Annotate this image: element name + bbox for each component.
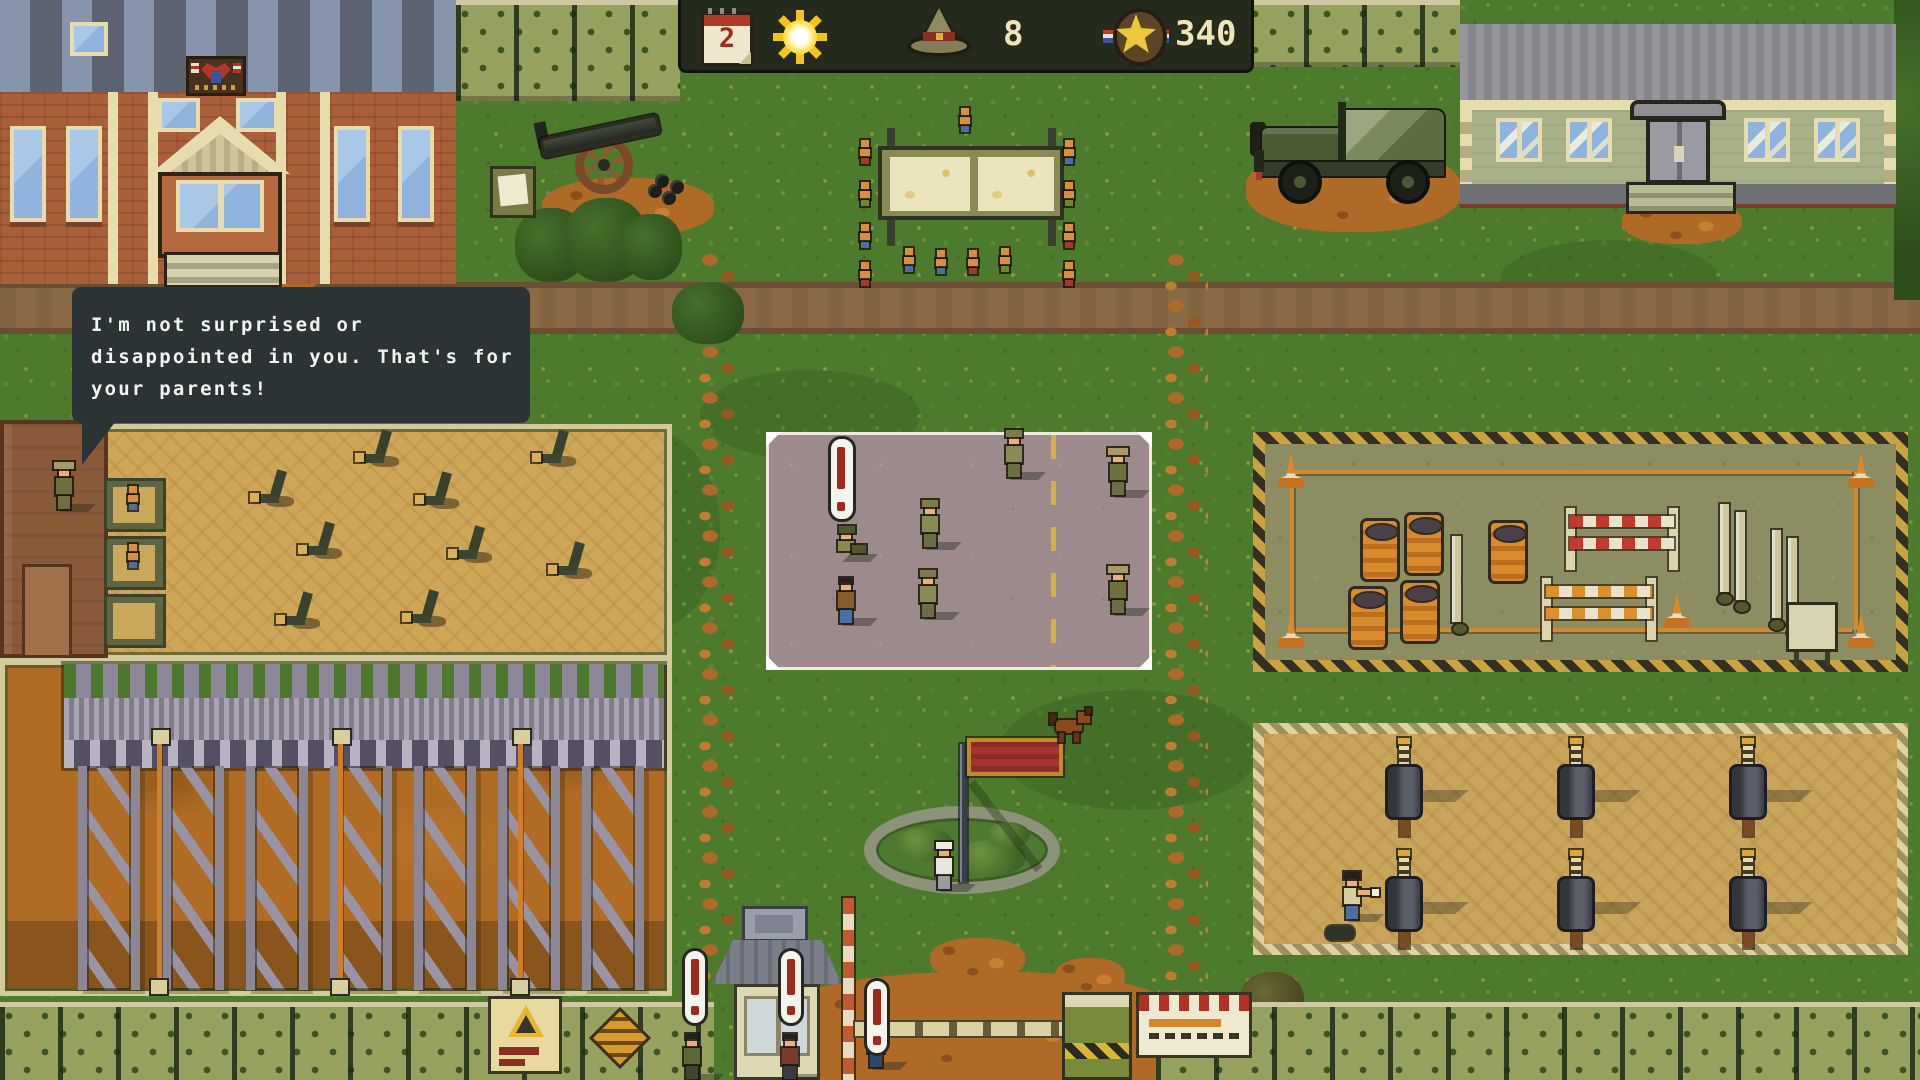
- game-scene: 2 8 340 I'm not surprised or disappointe…: [0, 0, 1920, 1080]
- annex-door-canopy: [1630, 100, 1726, 120]
- hq-window: [398, 126, 434, 222]
- selection-corner: [1137, 432, 1152, 447]
- drill-instructor-unit[interactable]: [1106, 448, 1130, 498]
- hq-window-small: [236, 98, 278, 132]
- drill-instructor-unit[interactable]: [1106, 566, 1130, 616]
- punching-bag[interactable]: [1726, 850, 1770, 948]
- rope-base: [330, 978, 350, 996]
- recruit-unit[interactable]: [858, 140, 872, 164]
- seated-soldier-unit[interactable]: [834, 528, 858, 562]
- recruit-situps[interactable]: [276, 590, 320, 634]
- no-entry-sign: [1786, 602, 1838, 670]
- exclamation-alert[interactable]: [682, 948, 708, 1026]
- annex-steps: [1626, 182, 1736, 214]
- exercise-mat: [104, 594, 166, 648]
- notice-board[interactable]: [878, 146, 1064, 220]
- annex-door: [1646, 118, 1710, 184]
- selection-corner: [1137, 655, 1152, 670]
- trestle-column: [498, 766, 560, 990]
- rope-base: [149, 978, 169, 996]
- flagpole[interactable]: [960, 744, 967, 882]
- hq-steps: [164, 252, 282, 288]
- military-jeep[interactable]: [1250, 92, 1462, 222]
- hq-pilaster: [320, 92, 330, 284]
- recruit-situps[interactable]: [415, 470, 459, 514]
- drill-sergeant-unit[interactable]: [52, 462, 76, 512]
- trestle-column: [582, 766, 644, 990]
- gate-notice-sign: [1136, 992, 1252, 1058]
- dirt-patch: [930, 938, 1025, 980]
- arriving-civilian-unit[interactable]: [778, 1032, 802, 1080]
- recruit-unit[interactable]: [1062, 182, 1076, 206]
- exclamation-alert[interactable]: [828, 436, 856, 522]
- recruit-exercising[interactable]: [126, 486, 140, 510]
- warning-poster: [488, 996, 562, 1074]
- trestle-column: [78, 766, 140, 990]
- annex-window: [1814, 118, 1860, 162]
- recruit-situps[interactable]: [448, 524, 492, 568]
- arriving-civilian-unit[interactable]: [680, 1032, 704, 1080]
- guard-booth: [1062, 992, 1132, 1080]
- rope-base: [510, 978, 530, 996]
- recruit-situps[interactable]: [548, 540, 592, 584]
- trestle-column: [162, 766, 224, 990]
- civilian-recruit-unit[interactable]: [834, 576, 858, 626]
- hq-window: [66, 126, 102, 222]
- annex-window: [1566, 118, 1612, 162]
- recruit-unit[interactable]: [1062, 140, 1076, 164]
- recruit-unit[interactable]: [1062, 224, 1076, 248]
- hq-window: [334, 126, 370, 222]
- hq-window-small: [158, 98, 200, 132]
- gate-barrier-pole: [843, 898, 854, 1080]
- punching-bag[interactable]: [1382, 738, 1426, 836]
- headquarters-building[interactable]: [0, 0, 456, 284]
- soldier-unit[interactable]: [1002, 430, 1026, 480]
- speech-line: your parents!: [91, 373, 530, 405]
- barrel: [1400, 580, 1440, 644]
- cordon-rope: [1854, 472, 1858, 630]
- practice-pole: [1450, 534, 1466, 642]
- cordon-rope: [1292, 470, 1852, 474]
- drill-instructor-count: 8: [1003, 14, 1023, 54]
- selection-corner: [766, 432, 781, 447]
- chain-link-fence: [1246, 0, 1460, 67]
- soldier-unit[interactable]: [918, 500, 942, 550]
- dirt-patch: [1055, 958, 1125, 994]
- barrel: [1488, 520, 1528, 584]
- speech-line: disappointed in you. That's for: [91, 341, 530, 373]
- hq-pilaster: [108, 92, 118, 284]
- climbing-rope[interactable]: [518, 744, 523, 986]
- annex-quoin: [1884, 110, 1896, 184]
- barrel: [1348, 586, 1388, 650]
- hazard-diamond-sign: [588, 1006, 652, 1072]
- barrel: [1404, 512, 1444, 576]
- speech-bubble: I'm not surprised or disappointed in you…: [72, 287, 530, 423]
- recruit-unit[interactable]: [966, 250, 980, 274]
- annex-roof: [1460, 24, 1896, 100]
- punching-bag[interactable]: [1554, 738, 1598, 836]
- recruit-unit[interactable]: [902, 248, 916, 272]
- log-bundle: [1716, 502, 1752, 610]
- campaign-hat-icon: [908, 8, 970, 62]
- recruit-exercising[interactable]: [126, 544, 140, 568]
- merit-points-count: 340: [1175, 14, 1236, 54]
- dirt-trail: [698, 250, 738, 990]
- instructor-platform[interactable]: [0, 420, 108, 658]
- annex-building[interactable]: [1460, 24, 1896, 208]
- recruit-unit[interactable]: [998, 248, 1012, 272]
- recruit-unit[interactable]: [958, 108, 972, 132]
- top-hud-bar: 2 8 340: [678, 0, 1254, 73]
- soldier-unit[interactable]: [916, 570, 940, 620]
- camp-dog[interactable]: [1052, 708, 1092, 746]
- exclamation-alert[interactable]: [778, 948, 804, 1026]
- parade-ground[interactable]: [766, 432, 1152, 670]
- climbing-rope[interactable]: [338, 744, 343, 986]
- duffel-bag: [1326, 926, 1354, 940]
- annex-window: [1496, 118, 1542, 162]
- speech-line: I'm not surprised or: [91, 309, 530, 341]
- dirt-trail: [1164, 250, 1208, 1080]
- punching-bag[interactable]: [1382, 850, 1426, 948]
- star-medal-icon: [1103, 6, 1169, 64]
- hq-eagle-crest: [186, 56, 246, 96]
- trestle-column: [414, 766, 476, 990]
- yellow-marking-line: [1051, 435, 1056, 667]
- selection-corner: [766, 655, 781, 670]
- hq-entrance-window: [176, 180, 264, 232]
- hq-window: [10, 126, 46, 222]
- recruit-unit[interactable]: [858, 262, 872, 286]
- recruit-unit[interactable]: [858, 182, 872, 206]
- tree-bush: [672, 282, 744, 344]
- hq-pilaster: [148, 92, 158, 284]
- chain-link-fence: [1156, 1002, 1920, 1080]
- recruit-unit[interactable]: [1062, 262, 1076, 286]
- camp-flag: [967, 738, 1063, 776]
- climbing-rope[interactable]: [157, 744, 162, 986]
- recruit-situps[interactable]: [250, 468, 294, 512]
- recruit-situps[interactable]: [402, 588, 446, 632]
- day-number: 2: [704, 23, 750, 54]
- recruit-unit[interactable]: [858, 224, 872, 248]
- cordon-rope: [1290, 472, 1294, 630]
- striped-barrier: [1566, 508, 1678, 570]
- hq-dormer-window: [70, 22, 108, 56]
- recruit-situps[interactable]: [298, 520, 342, 564]
- exclamation-alert[interactable]: [864, 978, 890, 1056]
- striped-barrier: [1542, 578, 1656, 640]
- trestle-column: [246, 766, 308, 990]
- punching-bag[interactable]: [1726, 738, 1770, 836]
- sun-icon: [773, 10, 827, 64]
- annex-window: [1744, 118, 1790, 162]
- chain-link-fence: [456, 0, 680, 101]
- monument-cannon[interactable]: [480, 108, 710, 238]
- recruit-boxing-unit[interactable]: [1340, 872, 1364, 922]
- barrel: [1360, 518, 1400, 582]
- honor-guard-unit[interactable]: [932, 842, 956, 892]
- recruit-situps[interactable]: [355, 428, 399, 472]
- recruit-situps[interactable]: [532, 428, 576, 472]
- recruit-unit[interactable]: [934, 250, 948, 274]
- calendar-icon: 2: [701, 12, 753, 66]
- tree-hedge: [1894, 0, 1920, 300]
- climbing-wall-beam: [64, 664, 664, 768]
- punching-bag[interactable]: [1554, 850, 1598, 948]
